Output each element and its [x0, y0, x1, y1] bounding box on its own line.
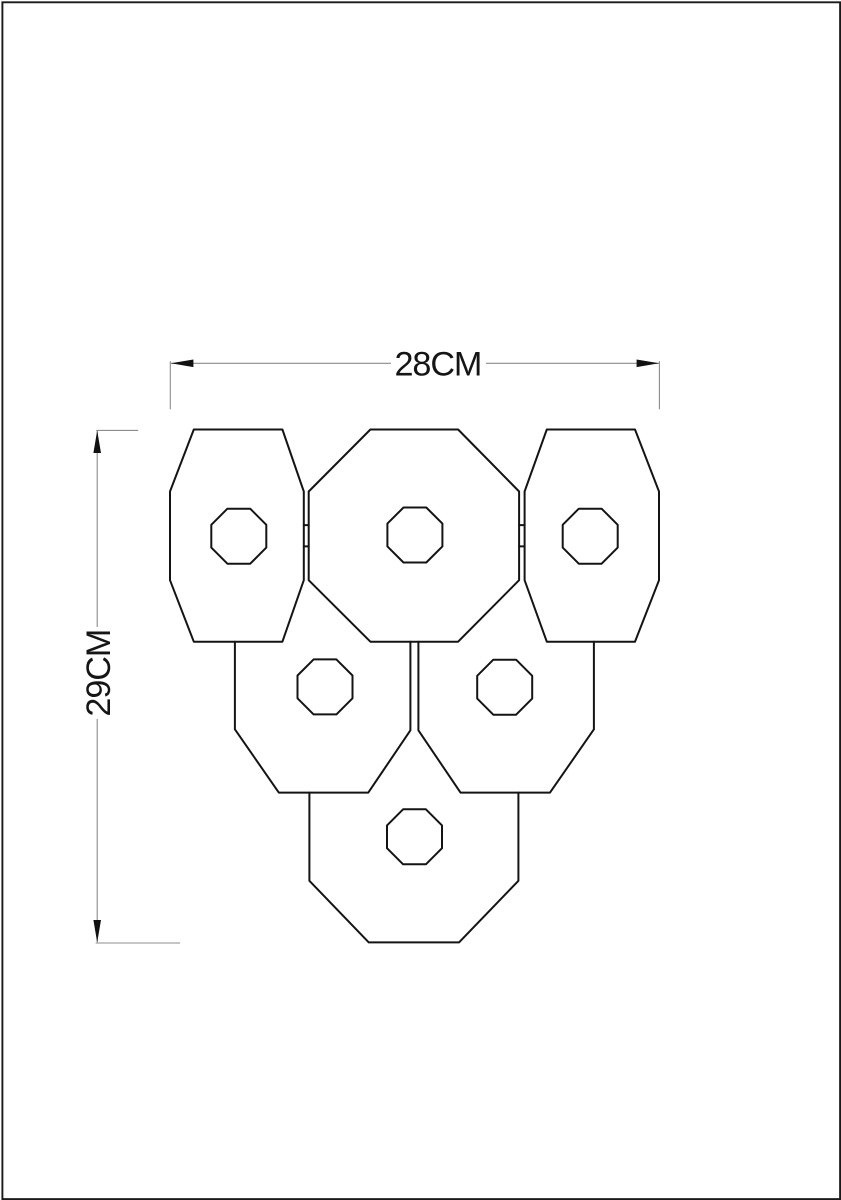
svg-text:28CM: 28CM [395, 346, 482, 384]
svg-text:29CM: 29CM [80, 630, 118, 717]
